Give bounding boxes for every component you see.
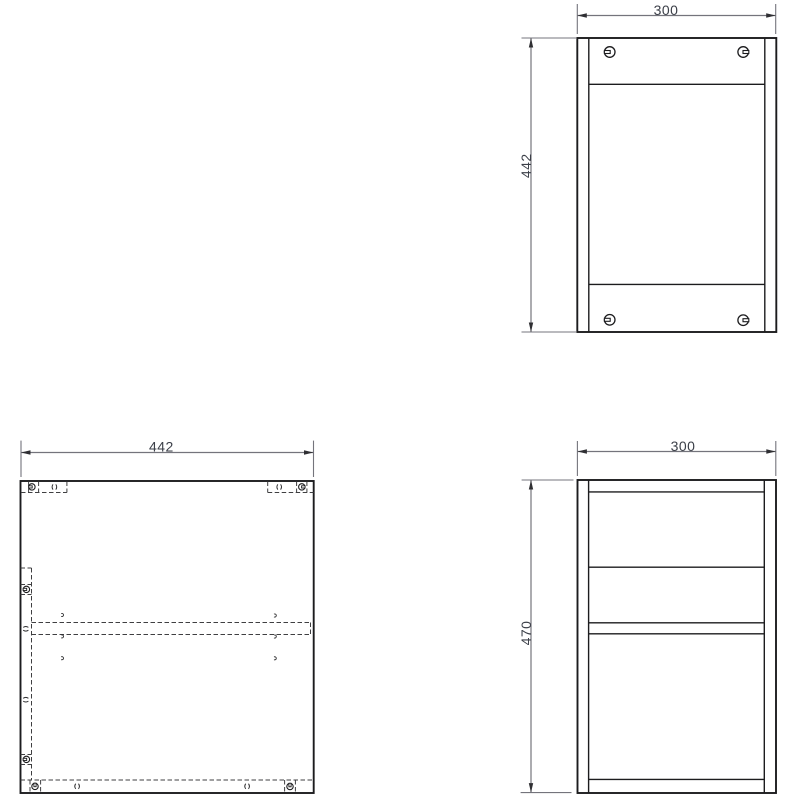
svg-text:470: 470 [518,621,534,646]
svg-text:442: 442 [518,153,534,178]
svg-text:300: 300 [654,2,679,18]
svg-text:300: 300 [671,438,696,454]
svg-text:442: 442 [149,439,174,455]
